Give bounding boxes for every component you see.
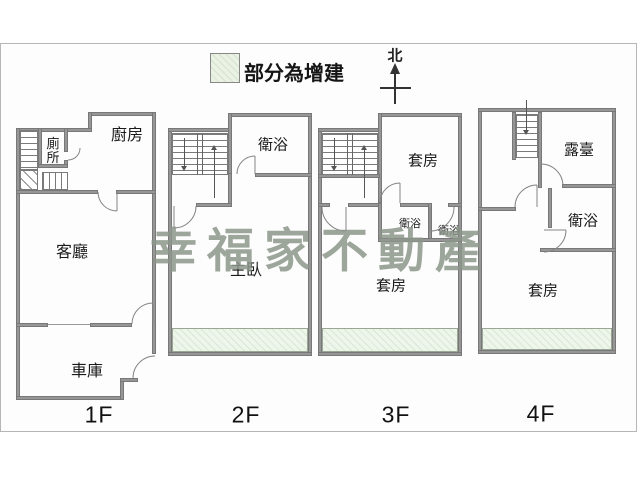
- room-label-bath: 衛浴: [568, 210, 598, 231]
- room-label-garage: 車庫: [71, 357, 103, 381]
- wall: [540, 248, 616, 252]
- wall: [168, 128, 232, 132]
- stairs-winder: [20, 170, 38, 190]
- stair-rail: [347, 133, 348, 175]
- wall: [16, 396, 124, 400]
- room-label-living: 客廳: [56, 238, 88, 262]
- wall: [478, 108, 616, 112]
- stair-arrow-down-icon: [331, 166, 337, 171]
- stair-rail: [197, 133, 198, 175]
- stair-arrow: [334, 138, 335, 166]
- wall: [16, 190, 98, 194]
- room-label-suite-top: 套房: [408, 150, 438, 171]
- wall: [448, 203, 462, 207]
- stairs: [516, 114, 538, 158]
- north-arrow-line: [394, 66, 396, 104]
- wall: [318, 352, 462, 356]
- floor-label-4f: 4F: [527, 401, 556, 428]
- floor-label-3f: 3F: [382, 402, 411, 429]
- floor-plan-image: 部分為增建 北 廁所 廚房 客廳 車庫 1F: [0, 0, 640, 480]
- wall: [562, 184, 616, 188]
- wall: [538, 112, 542, 188]
- stair-arrow: [364, 150, 365, 198]
- wall: [318, 128, 382, 132]
- stair-arrow: [526, 100, 527, 130]
- addition-area: [482, 328, 612, 350]
- wall: [168, 352, 312, 356]
- wall: [116, 190, 156, 194]
- wall: [228, 113, 232, 177]
- floor-label-1f: 1F: [85, 402, 114, 429]
- stair-arrow: [184, 138, 185, 166]
- wall: [348, 203, 381, 207]
- stairs: [20, 130, 38, 170]
- wall: [88, 112, 156, 116]
- wall: [478, 207, 516, 211]
- wall: [90, 323, 132, 327]
- wall: [378, 113, 462, 117]
- addition-area: [172, 328, 308, 352]
- addition-area: [322, 328, 458, 352]
- room-label-toilet: 廁所: [45, 137, 61, 165]
- wall: [548, 188, 552, 228]
- wall: [378, 113, 382, 203]
- wall: [38, 128, 42, 168]
- stair-arrow-up-icon: [361, 145, 367, 150]
- wall: [120, 378, 138, 382]
- room-label-suite: 套房: [528, 280, 558, 301]
- watermark: 幸福家不動產: [150, 212, 492, 281]
- wall: [255, 173, 312, 177]
- legend-label: 部分為增建: [244, 57, 344, 86]
- stair-rail: [352, 133, 353, 175]
- room-label-bath: 衛浴: [258, 134, 288, 155]
- room-label-kitchen: 廚房: [111, 121, 143, 145]
- wall: [228, 173, 232, 207]
- north-arrow-cross: [380, 87, 411, 89]
- wall: [64, 128, 68, 152]
- wall: [228, 113, 312, 117]
- stair-arrow-down-icon: [523, 130, 529, 135]
- stair-rail: [202, 133, 203, 175]
- stair-arrow: [214, 150, 215, 198]
- legend-addition-swatch: [210, 53, 240, 83]
- wall: [478, 350, 616, 354]
- stair-arrow-up-icon: [211, 145, 217, 150]
- wall: [318, 203, 330, 207]
- wall: [612, 108, 616, 354]
- wall: [196, 203, 232, 207]
- floor-label-2f: 2F: [232, 402, 261, 429]
- opening-line: [48, 324, 90, 325]
- room-label-terrace: 露臺: [564, 139, 594, 160]
- stair-arrow-down-icon: [181, 166, 187, 171]
- wall: [16, 323, 48, 327]
- stairs: [42, 172, 68, 190]
- wall: [400, 203, 429, 207]
